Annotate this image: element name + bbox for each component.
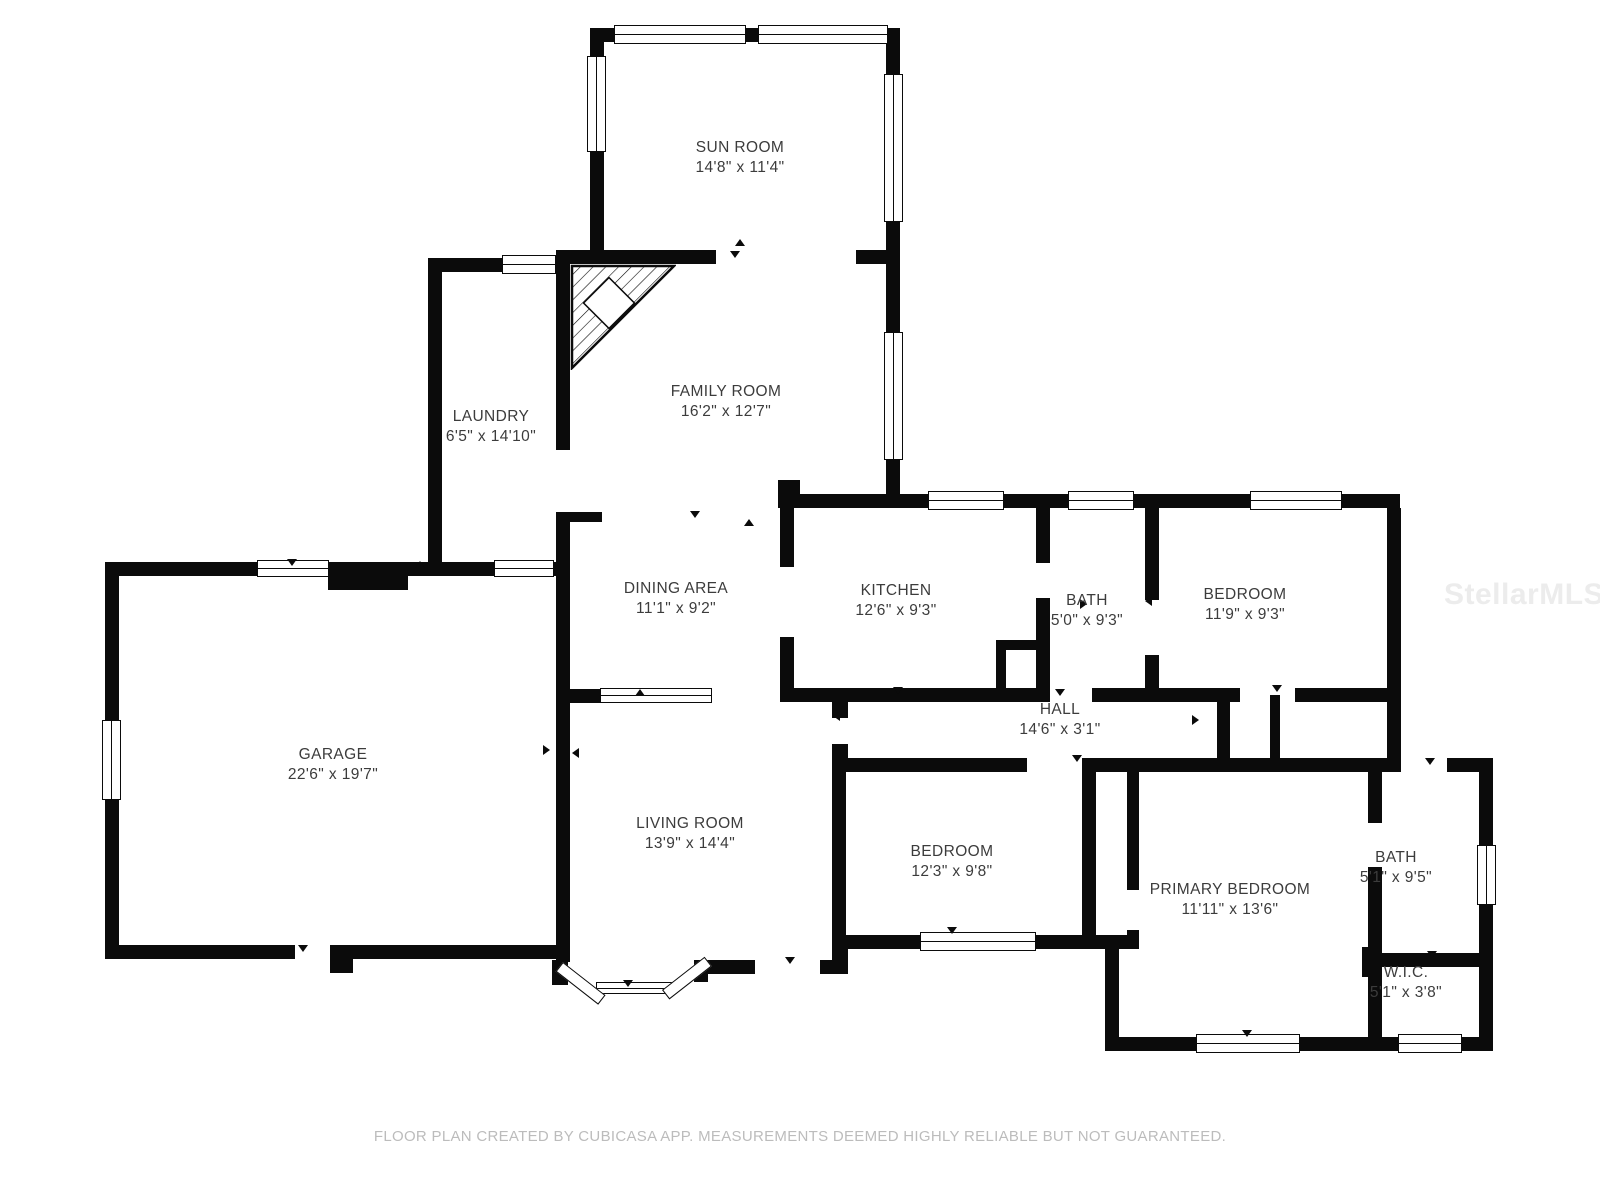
wall-segment — [832, 758, 1027, 772]
window-vertical — [884, 74, 903, 222]
wall-segment — [1270, 695, 1280, 760]
window-horizontal — [758, 25, 888, 44]
wall-segment — [1295, 688, 1401, 702]
room-dims: 22'6" x 19'7" — [288, 765, 378, 785]
room-dims: 14'6" x 3'1" — [1019, 720, 1100, 740]
room-label-hall: HALL14'6" x 3'1" — [1019, 700, 1100, 740]
room-name: BEDROOM — [911, 842, 994, 862]
window-vertical — [884, 332, 903, 460]
room-name: KITCHEN — [855, 581, 936, 601]
wall-segment — [1082, 758, 1096, 948]
room-label-wic: W.I.C.5'1" x 3'8" — [1370, 963, 1442, 1003]
fireplace-hatch — [570, 264, 676, 370]
door-swing-marker — [785, 957, 795, 964]
wall-segment — [832, 949, 848, 974]
wall-segment — [1105, 935, 1119, 1051]
wall-segment — [1036, 508, 1050, 563]
room-label-kitchen: KITCHEN12'6" x 9'3" — [855, 581, 936, 621]
window-horizontal — [494, 560, 554, 577]
door-swing-marker — [298, 945, 308, 952]
wall-segment — [328, 562, 408, 590]
room-name: W.I.C. — [1370, 963, 1442, 983]
room-name: FAMILY ROOM — [671, 382, 782, 402]
window-horizontal — [502, 255, 556, 274]
wall-segment — [556, 250, 716, 264]
wall-segment — [1092, 688, 1240, 702]
room-label-sun-room: SUN ROOM14'8" x 11'4" — [695, 138, 784, 178]
room-label-primary-bedroom: PRIMARY BEDROOM11'11" x 13'6" — [1150, 880, 1310, 920]
wall-segment — [353, 945, 570, 959]
room-label-bath-top: BATH5'0" x 9'3" — [1051, 591, 1123, 631]
door-swing-marker — [1055, 689, 1065, 696]
room-dims: 5'1" x 3'8" — [1370, 983, 1442, 1003]
window-horizontal — [600, 688, 712, 703]
room-label-dining-area: DINING AREA11'1" x 9'2" — [624, 579, 728, 619]
room-name: PRIMARY BEDROOM — [1150, 880, 1310, 900]
wall-segment — [1145, 508, 1159, 600]
room-name: LAUNDRY — [446, 407, 536, 427]
door-swing-marker — [735, 239, 745, 246]
wall-segment — [996, 640, 1050, 650]
room-name: GARAGE — [288, 745, 378, 765]
door-swing-marker — [690, 511, 700, 518]
room-name: HALL — [1019, 700, 1100, 720]
door-swing-marker — [1427, 951, 1437, 958]
room-dims: 12'3" x 9'8" — [911, 862, 994, 882]
floor-plan: SUN ROOM14'8" x 11'4" FAMILY ROOM16'2" x… — [0, 0, 1600, 1200]
room-dims: 5'0" x 9'3" — [1051, 611, 1123, 631]
window-horizontal — [1398, 1034, 1462, 1053]
room-name: LIVING ROOM — [636, 814, 744, 834]
room-label-bath-bottom: BATH5'1" x 9'5" — [1360, 848, 1432, 888]
room-dims: 13'9" x 14'4" — [636, 834, 744, 854]
room-dims: 16'2" x 12'7" — [671, 402, 782, 422]
wall-segment — [556, 689, 600, 703]
door-swing-marker — [415, 561, 425, 568]
window-horizontal — [1250, 491, 1342, 510]
window-horizontal — [614, 25, 746, 44]
door-swing-marker — [635, 689, 645, 696]
room-label-living-room: LIVING ROOM13'9" x 14'4" — [636, 814, 744, 854]
window-horizontal — [928, 491, 1004, 510]
wall-segment — [780, 508, 794, 567]
wall-segment — [330, 945, 353, 973]
room-dims: 12'6" x 9'3" — [855, 601, 936, 621]
window-vertical — [102, 720, 121, 800]
door-swing-marker — [1145, 596, 1152, 606]
door-swing-marker — [744, 519, 754, 526]
room-name: SUN ROOM — [695, 138, 784, 158]
door-swing-marker — [543, 745, 550, 755]
wall-segment — [556, 512, 602, 522]
door-swing-marker — [893, 687, 903, 694]
room-name: BATH — [1360, 848, 1432, 868]
door-swing-marker — [572, 748, 579, 758]
door-swing-marker — [833, 711, 840, 721]
door-swing-marker — [1242, 1030, 1252, 1037]
room-dims: 5'1" x 9'5" — [1360, 868, 1432, 888]
room-label-bedroom-top: BEDROOM11'9" x 9'3" — [1204, 585, 1287, 625]
window-vertical — [587, 56, 606, 152]
room-dims: 11'9" x 9'3" — [1204, 605, 1287, 625]
room-dims: 14'8" x 11'4" — [695, 158, 784, 178]
room-name: BATH — [1051, 591, 1123, 611]
wall-segment — [780, 688, 1047, 702]
room-dims: 6'5" x 14'10" — [446, 427, 536, 447]
wall-segment — [1087, 758, 1397, 772]
wall-segment — [556, 570, 570, 962]
footer-disclaimer: FLOOR PLAN CREATED BY CUBICASA APP. MEAS… — [0, 1128, 1600, 1145]
door-swing-marker — [1425, 758, 1435, 765]
wall-segment — [1387, 508, 1401, 772]
wall-segment — [1368, 772, 1382, 823]
window-horizontal — [920, 932, 1036, 951]
room-dims: 11'1" x 9'2" — [624, 599, 728, 619]
room-label-bedroom-bottom: BEDROOM12'3" x 9'8" — [911, 842, 994, 882]
wall-segment — [1127, 930, 1139, 949]
wall-segment — [832, 772, 846, 949]
wall-segment — [556, 258, 570, 450]
door-swing-marker — [623, 980, 633, 987]
room-label-garage: GARAGE22'6" x 19'7" — [288, 745, 378, 785]
window-horizontal — [1068, 491, 1134, 510]
door-swing-marker — [1072, 755, 1082, 762]
room-label-family-room: FAMILY ROOM16'2" x 12'7" — [671, 382, 782, 422]
room-label-laundry: LAUNDRY6'5" x 14'10" — [446, 407, 536, 447]
door-swing-marker — [1192, 715, 1199, 725]
stellar-mls-watermark: StellarMLS — [1444, 578, 1600, 612]
wall-segment — [1036, 598, 1050, 702]
door-swing-marker — [1272, 685, 1282, 692]
wall-segment — [856, 250, 900, 264]
window-vertical — [1477, 845, 1496, 905]
wall-segment — [1127, 772, 1139, 890]
wall-segment — [105, 945, 295, 959]
door-swing-marker — [730, 251, 740, 258]
room-name: DINING AREA — [624, 579, 728, 599]
door-swing-marker — [287, 559, 297, 566]
room-dims: 11'11" x 13'6" — [1150, 900, 1310, 920]
room-name: BEDROOM — [1204, 585, 1287, 605]
door-swing-marker — [947, 927, 957, 934]
wall-segment — [1217, 702, 1230, 760]
wall-segment — [428, 258, 442, 576]
